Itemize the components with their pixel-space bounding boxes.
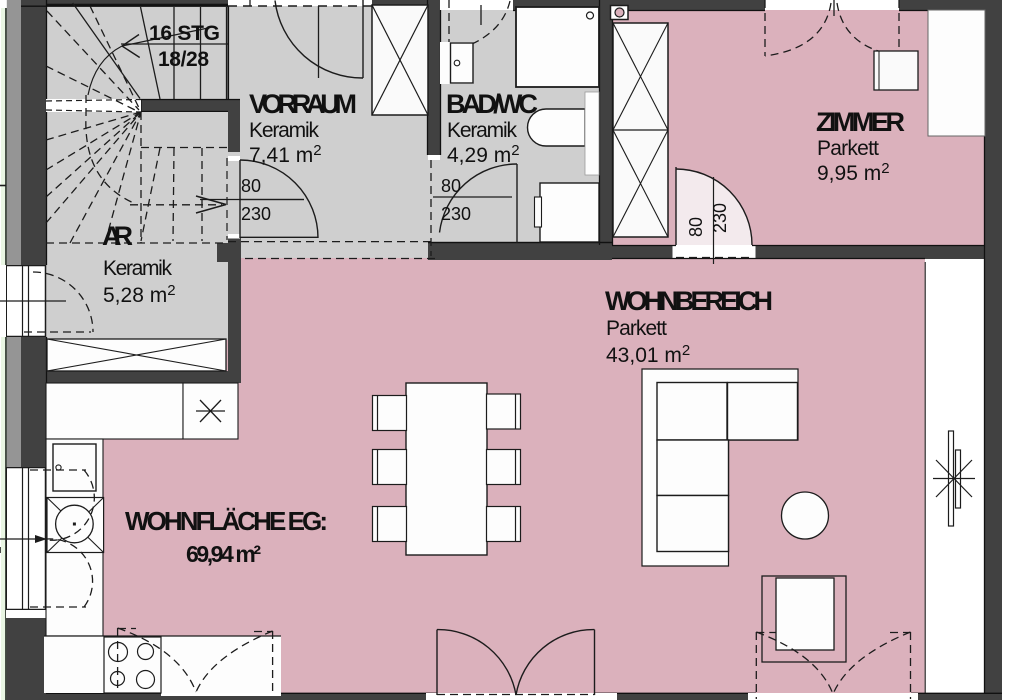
svg-text:230: 230: [241, 204, 271, 224]
svg-text:Keramik: Keramik: [447, 119, 518, 142]
svg-text:80: 80: [686, 217, 706, 237]
svg-text:WOHNBEREICH: WOHNBEREICH: [605, 286, 773, 316]
svg-text:80: 80: [441, 176, 461, 196]
svg-text:Parkett: Parkett: [606, 317, 667, 340]
svg-text:Parkett: Parkett: [817, 137, 879, 160]
svg-text:BAD/WC: BAD/WC: [446, 89, 538, 119]
svg-text:Keramik: Keramik: [103, 257, 173, 280]
svg-text:Keramik: Keramik: [249, 119, 320, 142]
svg-text:230: 230: [441, 204, 471, 224]
svg-text:5,28 m2: 5,28 m2: [103, 282, 176, 307]
svg-text:4,29 m2: 4,29 m2: [447, 142, 520, 167]
svg-text:230: 230: [710, 203, 730, 233]
svg-text:9,95 m2: 9,95 m2: [817, 160, 890, 185]
svg-text:ZIMMER: ZIMMER: [816, 107, 905, 137]
svg-text:VORRAUM: VORRAUM: [249, 89, 357, 119]
svg-text:AR: AR: [102, 221, 133, 251]
svg-text:7,41 m2: 7,41 m2: [249, 142, 322, 167]
svg-text:43,01 m2: 43,01 m2: [606, 342, 690, 367]
svg-text:16 STG: 16 STG: [149, 22, 220, 45]
svg-text:WOHNFLÄCHE EG:: WOHNFLÄCHE EG:: [125, 506, 328, 536]
svg-text:18/28: 18/28: [158, 48, 209, 71]
svg-text:80: 80: [241, 176, 261, 196]
svg-text:69,94 m²: 69,94 m²: [186, 541, 261, 567]
